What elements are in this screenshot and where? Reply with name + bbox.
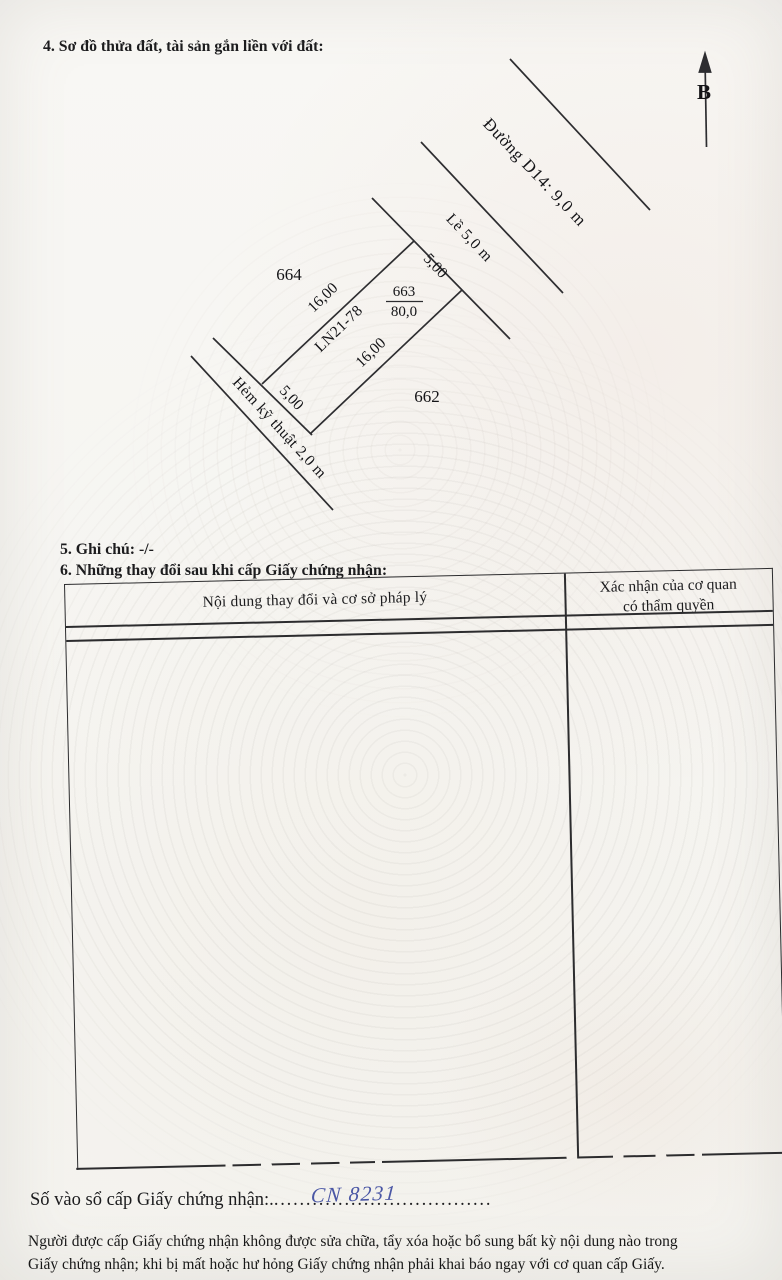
section5-heading: 5. Ghi chú: -/- [60, 541, 154, 559]
legal-note-line1: Người được cấp Giấy chứng nhận không đượ… [28, 1231, 678, 1254]
header-rule-double [66, 624, 773, 642]
north-arrow-icon: B [697, 54, 711, 148]
serial-label: Số vào sổ cấp Giấy chứng nhận:. [30, 1190, 274, 1210]
dim-front: 5,00 [420, 250, 451, 282]
serial-row: Số vào sổ cấp Giấy chứng nhận:..........… [30, 1190, 492, 1211]
parcel-right-edge [310, 290, 462, 434]
table-bottom-border [77, 1152, 782, 1170]
parcel-number-area: 663 80,0 [386, 284, 423, 320]
plot-diagram: B Đường D14: 9,0 m Lề 5,0 m 5,00 16,00 L… [0, 0, 782, 545]
column-divider [564, 574, 579, 1159]
changes-table-col1-header: Nội dung thay đổi và cơ sở pháp lý [65, 574, 565, 626]
dim-left: 16,00 [304, 279, 341, 316]
parcel-number: 663 [393, 284, 416, 300]
sidewalk-label: Lề 5,0 m [443, 210, 496, 265]
col2-header-line1: Xác nhận của cơ quan [599, 576, 737, 596]
legal-note-line2: Giấy chứng nhận; khi bị mất hoặc hư hỏng… [28, 1254, 678, 1277]
north-label: B [697, 80, 711, 104]
road-label: Đường D14: 9,0 m [479, 114, 590, 230]
parcel-area: 80,0 [391, 304, 417, 320]
changes-table: Nội dung thay đổi và cơ sở pháp lý Xác n… [64, 568, 782, 1170]
road-edge-line [510, 59, 650, 210]
certificate-page: 4. Sơ đồ thửa đất, tài sản gắn liền với … [0, 0, 782, 1280]
adjacent-parcel-left: 664 [276, 265, 302, 284]
dim-rear: 5,00 [276, 382, 307, 414]
adjacent-parcel-right: 662 [414, 387, 440, 406]
changes-table-col2-header: Xác nhận của cơ quan có thẩm quyền [564, 569, 773, 631]
dim-right: 16,00 [352, 334, 389, 371]
serial-handwritten-value: CN 8231 [310, 1181, 398, 1209]
legal-note: Người được cấp Giấy chứng nhận không đượ… [28, 1231, 678, 1276]
